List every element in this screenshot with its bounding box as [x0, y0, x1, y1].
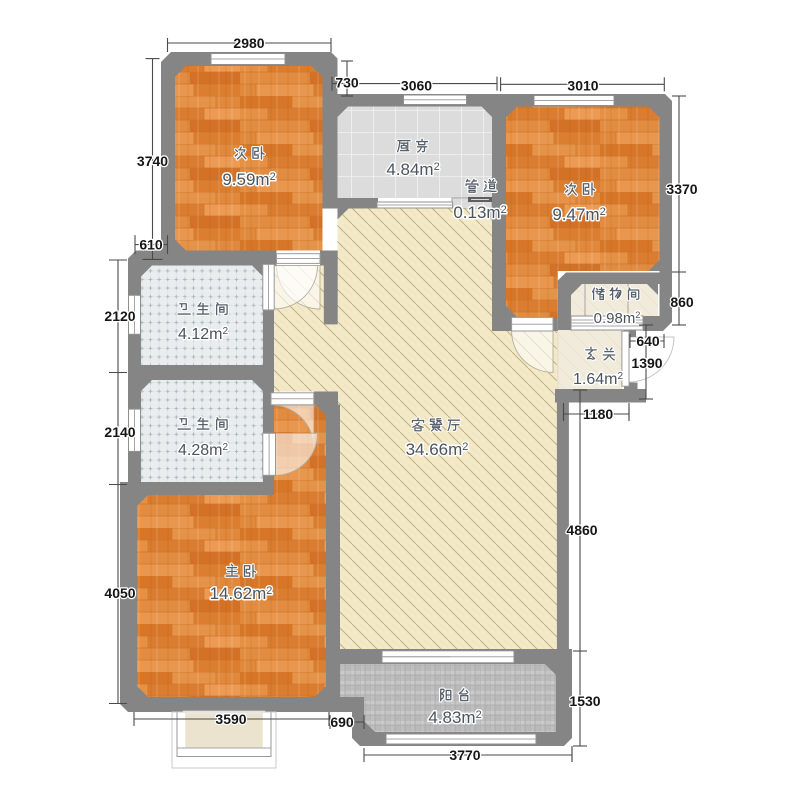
svg-text:9.59m2: 9.59m2: [222, 170, 275, 189]
svg-text:3770: 3770: [449, 747, 480, 763]
svg-text:34.66m2: 34.66m2: [406, 440, 469, 459]
svg-text:3590: 3590: [215, 711, 246, 727]
svg-text:2120: 2120: [104, 308, 135, 324]
svg-text:3370: 3370: [666, 181, 697, 197]
svg-text:4860: 4860: [566, 522, 597, 538]
svg-text:0.98m2: 0.98m2: [594, 310, 641, 327]
svg-text:4.83m2: 4.83m2: [428, 708, 481, 727]
svg-text:730: 730: [335, 75, 359, 91]
svg-text:4.84m2: 4.84m2: [386, 160, 439, 179]
svg-text:3010: 3010: [567, 78, 598, 94]
svg-text:14.62m2: 14.62m2: [210, 584, 273, 603]
svg-text:3060: 3060: [401, 78, 432, 94]
svg-text:2980: 2980: [233, 35, 264, 51]
svg-text:1390: 1390: [631, 355, 662, 371]
svg-text:1530: 1530: [569, 693, 600, 709]
svg-text:9.47m2: 9.47m2: [552, 205, 605, 224]
svg-text:2140: 2140: [104, 424, 135, 440]
svg-text:0.13m2: 0.13m2: [453, 203, 506, 222]
svg-text:860: 860: [670, 294, 694, 310]
svg-text:4.28m2: 4.28m2: [178, 442, 228, 459]
svg-text:640: 640: [636, 333, 660, 349]
svg-text:3740: 3740: [137, 153, 168, 169]
svg-text:1180: 1180: [583, 406, 614, 422]
svg-text:4.12m2: 4.12m2: [178, 326, 228, 343]
svg-text:690: 690: [330, 714, 354, 730]
svg-text:4050: 4050: [104, 585, 135, 601]
svg-text:610: 610: [139, 237, 163, 253]
svg-text:1.64m2: 1.64m2: [573, 371, 623, 388]
